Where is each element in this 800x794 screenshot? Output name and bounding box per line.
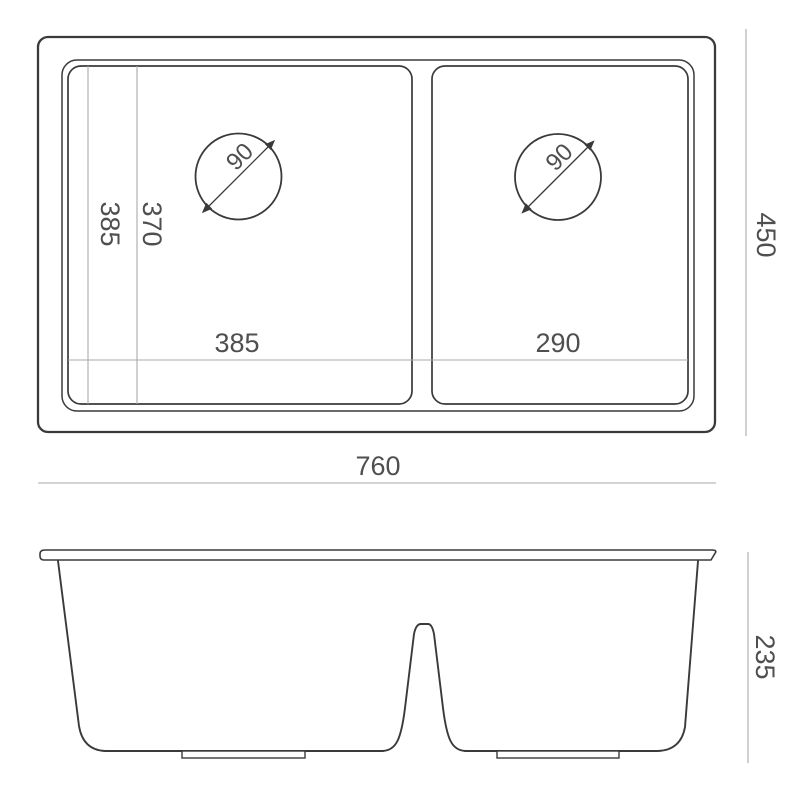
side-view-bowl-profile <box>58 561 698 751</box>
right-drain-diameter-label: 90 <box>541 139 579 177</box>
right-bowl-width-label: 290 <box>535 328 580 358</box>
overall-width-label: 760 <box>355 451 400 481</box>
top-view: 90 90 385 370 385 290 450 760 <box>38 29 781 483</box>
left-bowl-width-label: 385 <box>214 328 259 358</box>
bowl-depth-label: 235 <box>750 634 780 679</box>
left-drain-diameter-label: 90 <box>221 138 259 176</box>
side-view-flange <box>40 550 716 560</box>
left-bottom-pad <box>182 751 305 758</box>
left-bowl-inner-length-label: 370 <box>137 201 167 246</box>
right-bottom-pad <box>497 751 619 758</box>
side-view: 235 <box>40 550 780 763</box>
sink-dimension-drawing: 90 90 385 370 385 290 450 760 235 <box>0 0 800 794</box>
drawing-svg: 90 90 385 370 385 290 450 760 235 <box>0 0 800 794</box>
left-bowl-length-label: 385 <box>95 201 125 246</box>
overall-depth-label: 450 <box>751 212 781 257</box>
